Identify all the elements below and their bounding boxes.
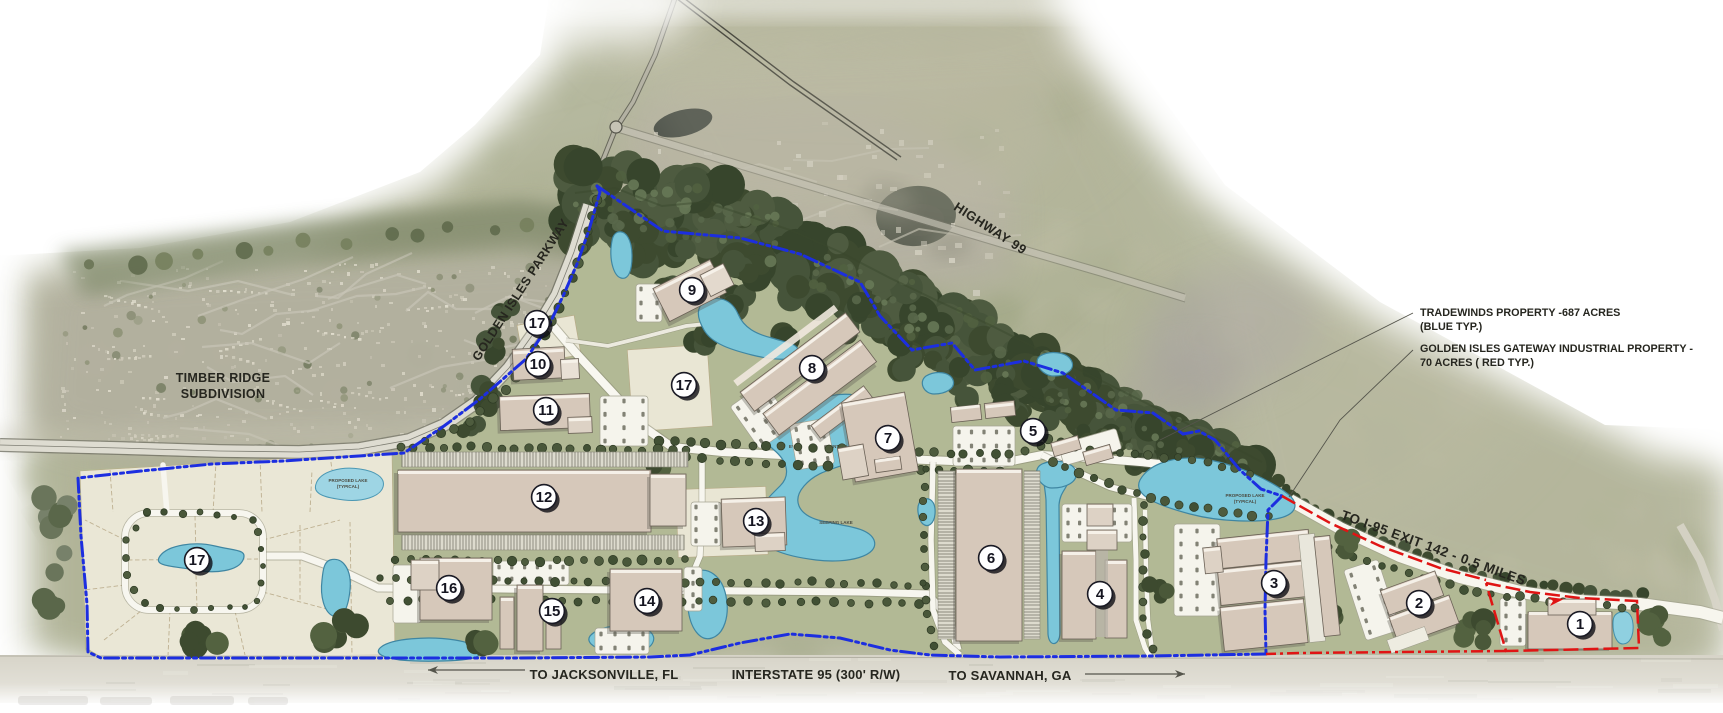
- svg-text:15: 15: [544, 603, 561, 620]
- svg-text:1: 1: [1576, 616, 1584, 633]
- svg-text:INTERSTATE 95 (300' R/W): INTERSTATE 95 (300' R/W): [732, 667, 901, 682]
- svg-text:TRADEWINDS PROPERTY -687 ACRES: TRADEWINDS PROPERTY -687 ACRES: [1420, 307, 1620, 319]
- svg-text:3: 3: [1270, 575, 1278, 592]
- svg-text:2: 2: [1415, 595, 1423, 612]
- svg-text:6: 6: [987, 550, 995, 567]
- svg-text:(TYPICAL): (TYPICAL): [1234, 499, 1257, 504]
- svg-text:12: 12: [536, 489, 553, 506]
- svg-text:PROPOSED LAKE: PROPOSED LAKE: [328, 478, 367, 483]
- svg-text:TO SAVANNAH, GA: TO SAVANNAH, GA: [949, 668, 1072, 683]
- svg-text:SUBDIVISION: SUBDIVISION: [181, 387, 266, 401]
- svg-text:PROPOSED LAKE: PROPOSED LAKE: [1225, 493, 1264, 498]
- svg-text:16: 16: [441, 580, 458, 597]
- svg-text:5: 5: [1029, 423, 1037, 440]
- svg-text:17: 17: [529, 315, 546, 332]
- svg-text:TO JACKSONVILLE, FL: TO JACKSONVILLE, FL: [530, 667, 679, 682]
- svg-text:4: 4: [1096, 586, 1105, 603]
- svg-text:TIMBER RIDGE: TIMBER RIDGE: [176, 371, 271, 385]
- svg-text:7: 7: [884, 430, 892, 447]
- svg-text:10: 10: [530, 356, 547, 373]
- svg-text:SEEPING LAKE: SEEPING LAKE: [819, 520, 853, 525]
- svg-text:(BLUE TYP.): (BLUE TYP.): [1420, 321, 1483, 333]
- svg-text:17: 17: [189, 552, 206, 569]
- svg-text:GOLDEN ISLES GATEWAY INDUSTRIA: GOLDEN ISLES GATEWAY INDUSTRIAL PROPERTY…: [1420, 343, 1693, 355]
- svg-text:13: 13: [748, 513, 765, 530]
- svg-text:9: 9: [688, 282, 696, 299]
- svg-text:(TYPICAL): (TYPICAL): [337, 484, 360, 489]
- svg-text:8: 8: [808, 360, 816, 377]
- svg-text:17: 17: [676, 377, 693, 394]
- svg-text:70 ACRES ( RED TYP.): 70 ACRES ( RED TYP.): [1420, 357, 1534, 369]
- svg-text:11: 11: [538, 402, 554, 419]
- svg-text:14: 14: [639, 593, 656, 610]
